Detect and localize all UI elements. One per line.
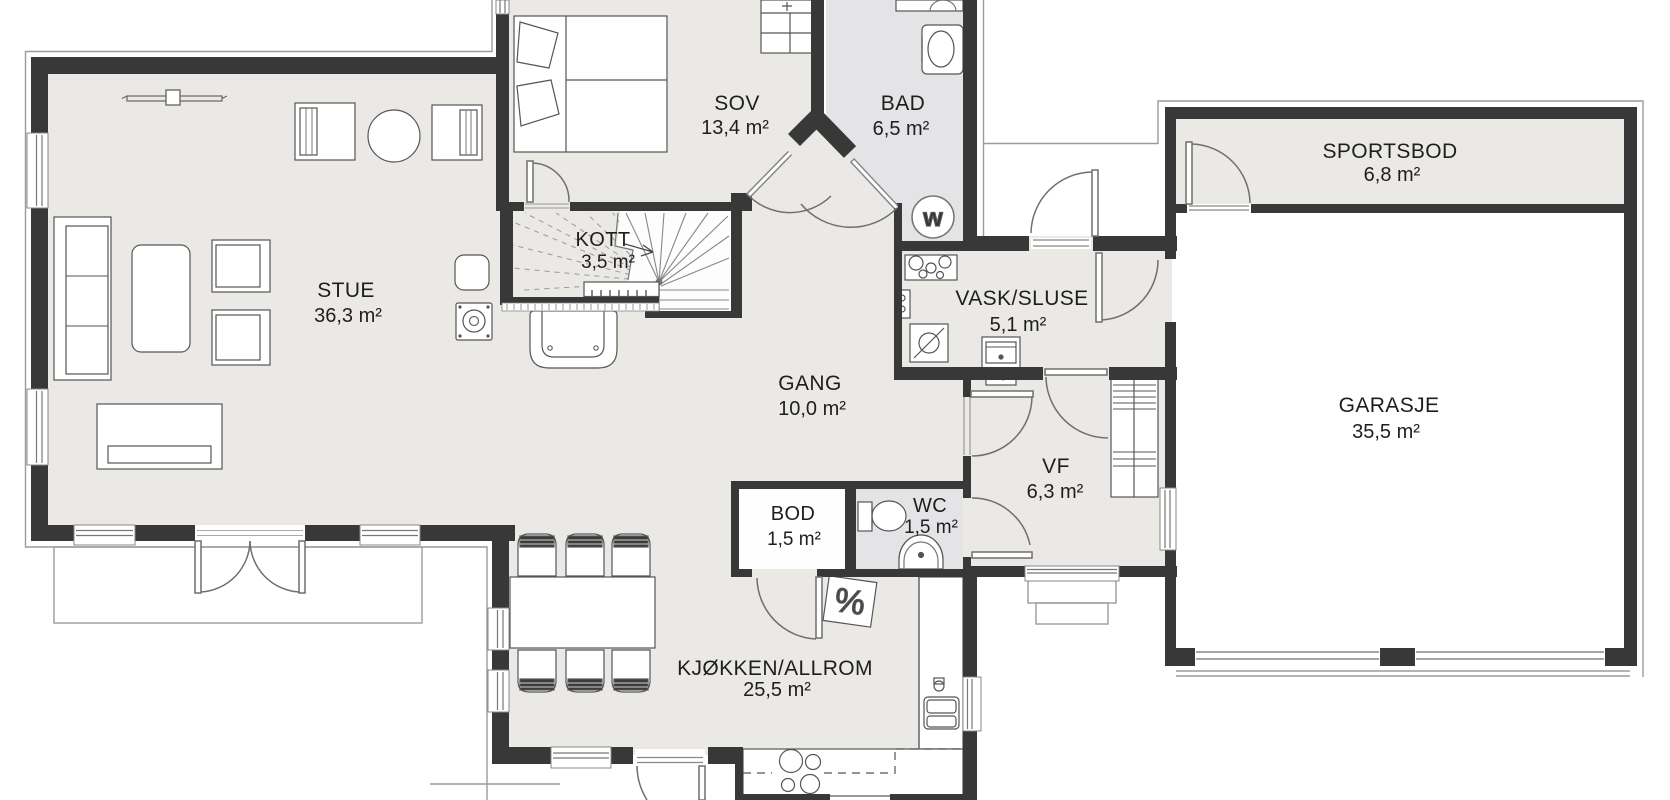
svg-text:SOV: SOV [714, 92, 760, 115]
svg-text:13,4 m²: 13,4 m² [701, 117, 769, 139]
svg-text:6,8 m²: 6,8 m² [1364, 164, 1421, 186]
svg-text:GARASJE: GARASJE [1339, 394, 1440, 417]
svg-text:WC: WC [913, 495, 947, 517]
svg-text:BOD: BOD [771, 503, 816, 525]
svg-text:36,3 m²: 36,3 m² [314, 305, 382, 327]
svg-text:5,1 m²: 5,1 m² [990, 314, 1047, 336]
svg-text:1,5 m²: 1,5 m² [767, 529, 821, 550]
svg-text:25,5 m²: 25,5 m² [743, 679, 811, 701]
svg-text:KJØKKEN/ALLROM: KJØKKEN/ALLROM [677, 657, 873, 680]
svg-text:STUE: STUE [317, 279, 375, 302]
svg-text:1,5 m²: 1,5 m² [904, 517, 958, 538]
svg-text:w: w [922, 204, 943, 232]
svg-text:KOTT: KOTT [576, 229, 631, 251]
svg-text:GANG: GANG [778, 372, 841, 395]
svg-text:6,3 m²: 6,3 m² [1027, 481, 1084, 503]
svg-text:3,5 m²: 3,5 m² [581, 252, 635, 273]
svg-text:SPORTSBOD: SPORTSBOD [1322, 140, 1457, 163]
svg-text:%: % [832, 581, 867, 623]
svg-text:BAD: BAD [881, 92, 925, 115]
svg-text:VF: VF [1042, 455, 1070, 478]
svg-text:10,0 m²: 10,0 m² [778, 398, 846, 420]
svg-text:6,5 m²: 6,5 m² [873, 118, 930, 140]
svg-text:35,5 m²: 35,5 m² [1352, 421, 1420, 443]
svg-text:VASK/SLUSE: VASK/SLUSE [955, 287, 1088, 310]
